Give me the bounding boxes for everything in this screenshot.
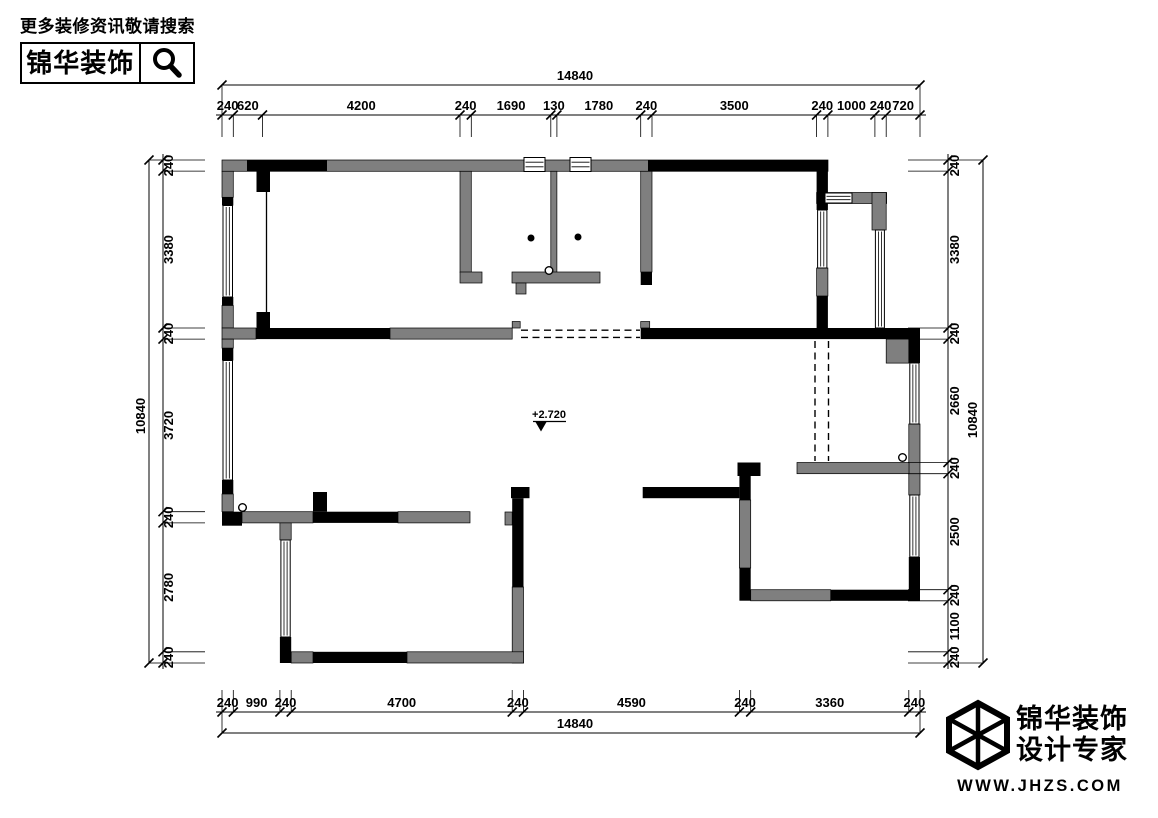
dimension-label: 240 — [947, 323, 962, 345]
dimension-label: 240 — [161, 323, 176, 345]
search-hint-text: 更多装修资讯敬请搜索 — [20, 12, 200, 37]
door-knob — [239, 504, 247, 512]
dimension-label: 240 — [161, 155, 176, 177]
dimension-label: 1000 — [837, 98, 866, 113]
footer-website: WWW.JHZS.COM — [940, 777, 1140, 796]
dimension-label: 3720 — [161, 411, 176, 440]
dimension-label: 130 — [543, 98, 565, 113]
brand-name: 锦华装饰 — [22, 44, 139, 82]
window-symbol — [223, 361, 233, 481]
dimension-label: 240 — [507, 695, 529, 710]
dimension-label: 1100 — [947, 612, 962, 640]
dimension-chain-left: 24033802403720240278024010840 — [133, 154, 205, 669]
dimension-label: 240 — [947, 584, 962, 606]
drain-dot — [528, 235, 535, 242]
dimension-label: 990 — [246, 695, 268, 710]
window-symbols — [223, 158, 919, 638]
floor-plan-page: +2.720 240620420024016901301780240350024… — [0, 0, 1158, 818]
dimension-label: 14840 — [557, 716, 593, 731]
dimension-label: 240 — [947, 647, 962, 669]
footer-brand-name: 锦华装饰 — [1016, 704, 1140, 735]
dimension-label: 240 — [870, 98, 892, 113]
dimension-label: 240 — [811, 98, 833, 113]
dimension-label: 240 — [217, 98, 239, 113]
dimension-label: 4200 — [347, 98, 376, 113]
footer-brand-tagline: 设计专家 — [1016, 735, 1140, 766]
dimension-label: 14840 — [557, 68, 593, 83]
dimension-chain-top: 2406204200240169013017802403500240100024… — [216, 68, 926, 137]
door-knob — [899, 454, 907, 462]
floor-plan: +2.720 240620420024016901301780240350024… — [0, 0, 1158, 818]
dimension-label: 3360 — [815, 695, 844, 710]
window-symbol — [910, 495, 919, 557]
door-knob — [545, 267, 553, 275]
dimension-label: 240 — [217, 695, 239, 710]
dimension-label: 2780 — [161, 573, 176, 602]
window-symbol — [875, 230, 884, 328]
window-symbol — [818, 210, 827, 268]
dimension-label: 240 — [734, 695, 756, 710]
dimension-label: 240 — [161, 647, 176, 669]
level-marker: +2.720 — [532, 409, 566, 432]
window-symbol — [524, 158, 545, 172]
dimension-label: 720 — [892, 98, 914, 113]
dimension-label: 3500 — [720, 98, 749, 113]
dimension-label: 240 — [947, 155, 962, 177]
footer-brand: 锦华装饰 设计专家 WWW.JHZS.COM — [940, 698, 1140, 796]
dimension-label: 3380 — [161, 235, 176, 264]
dimension-label: 620 — [237, 98, 259, 113]
dimension-label: 10840 — [133, 398, 148, 434]
level-marker-value: +2.720 — [532, 409, 566, 421]
dimension-label: 1690 — [497, 98, 526, 113]
dashed-opening-lines — [521, 330, 829, 461]
dimension-label: 4700 — [387, 695, 416, 710]
drain-dot — [575, 234, 582, 241]
window-symbol — [570, 158, 591, 172]
dimension-label: 4590 — [617, 695, 646, 710]
window-symbol — [825, 193, 852, 203]
dimension-label: 240 — [904, 695, 926, 710]
dimension-label: 240 — [161, 506, 176, 528]
dimension-label: 2660 — [947, 386, 962, 415]
window-symbol — [281, 540, 290, 637]
brand-search-box: 锦华装饰 — [20, 42, 195, 84]
window-symbol — [223, 206, 233, 298]
header-brand: 更多装修资讯敬请搜索 锦华装饰 — [20, 12, 200, 84]
dimension-chain-bottom: 24099024047002404590240336024014840 — [216, 690, 926, 738]
dimension-label: 240 — [947, 457, 962, 479]
cube-logo-icon — [942, 698, 1014, 772]
dimension-label: 240 — [455, 98, 477, 113]
dimension-label: 240 — [275, 695, 297, 710]
dimension-label: 3380 — [947, 235, 962, 264]
search-icon — [150, 46, 184, 80]
dimension-label: 240 — [635, 98, 657, 113]
dimension-label: 10840 — [965, 402, 980, 438]
dimension-label: 1780 — [584, 98, 613, 113]
window-symbol — [910, 363, 919, 424]
dimension-label: 2500 — [947, 517, 962, 546]
level-marker-arrow — [536, 422, 547, 432]
